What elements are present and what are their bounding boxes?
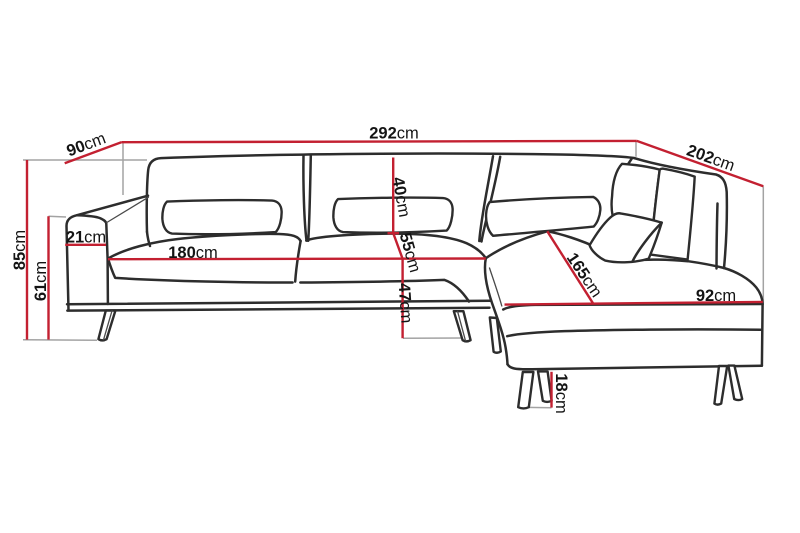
- svg-text:180cm: 180cm: [168, 244, 218, 262]
- svg-text:21cm: 21cm: [66, 229, 106, 247]
- svg-text:61cm: 61cm: [32, 261, 50, 301]
- svg-text:47cm: 47cm: [395, 282, 416, 324]
- svg-text:85cm: 85cm: [11, 230, 29, 270]
- svg-text:92cm: 92cm: [696, 287, 736, 305]
- svg-text:292cm: 292cm: [369, 125, 419, 143]
- svg-text:18cm: 18cm: [552, 373, 570, 413]
